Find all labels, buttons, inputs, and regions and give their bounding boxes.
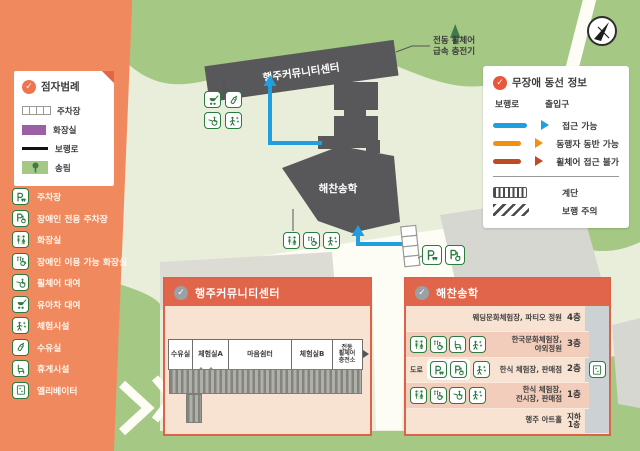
orange-entrance-arrow-icon xyxy=(535,138,543,148)
facility-accessible-parking: 장애인 전용 주차장 xyxy=(12,210,127,227)
floor-list: 웨딩문화체험장, 파티오 정원 4층 한국문화체험장, 야외정원 3층 도 xyxy=(406,306,589,433)
room-charger: 전동 휠체어 충전소 xyxy=(332,339,363,370)
corridor-hatched xyxy=(169,369,362,394)
wheelchair-rental-icon xyxy=(12,274,29,291)
facility-accessible-restroom: 장애인 이용 가능 화장실 xyxy=(12,253,127,270)
experience-icon xyxy=(323,232,340,249)
stairs-swatch xyxy=(493,187,527,198)
route-legend-title: 무장애 동선 정보 xyxy=(512,75,587,90)
room-nursing: 수유실 xyxy=(168,339,194,370)
parking-icon xyxy=(430,361,447,378)
legend-item-parking: 주차장 xyxy=(22,101,106,120)
braille-legend: ✓ 점자범례 주차장 화장실 보행로 송림 xyxy=(14,71,114,186)
room-experience-b: 체험실B xyxy=(291,339,333,370)
building2-label: 해찬송학 xyxy=(319,182,358,195)
haechansonghak-panel: ✓ 해찬송학 웨딩문화체험장, 파티오 정원 4층 xyxy=(404,277,611,436)
room-experience-a: 체험실A xyxy=(192,339,229,370)
map-icons-parking xyxy=(422,245,465,265)
wheelchair-rental-icon xyxy=(449,387,466,404)
facility-legend-list: 주차장 장애인 전용 주차장 화장실 장애인 이용 가능 화장실 휠체어 대여 … xyxy=(12,188,127,399)
floor-plan: 수유실 체험실A 마음쉼터 체험실B 전동 휠체어 충전소 xyxy=(165,306,370,433)
elevator-icon xyxy=(589,361,606,378)
accessible-restroom-icon xyxy=(12,253,29,270)
facility-wheelchair-rental: 휠체어 대여 xyxy=(12,274,127,291)
experience-icon xyxy=(225,112,242,129)
route-no-wheelchair: 휠체어 접근 불가 xyxy=(493,152,619,170)
parking-stalls-swatch xyxy=(22,106,50,115)
check-icon: ✓ xyxy=(493,76,507,90)
floor-row-b1: 행주 아트홀 지하 1층 xyxy=(406,408,589,433)
facility-stroller-rental: 유아차 대여 xyxy=(12,296,127,313)
accessible-site-map-page: 행주커뮤니티센터 전동 휠체어 급속 충전기 해찬송학 xyxy=(0,0,640,451)
floor-row-3f: 한국문화체험장, 야외정원 3층 xyxy=(406,331,589,356)
floor-row-1f: 한식 체험장, 전시장, 판매점 1층 xyxy=(406,382,589,407)
facility-parking: 주차장 xyxy=(12,188,127,205)
braille-legend-title: 점자범례 xyxy=(41,79,80,94)
panel-header: ✓ 행주커뮤니티센터 xyxy=(165,279,370,306)
compass-icon xyxy=(588,17,616,45)
accessible-parking-icon xyxy=(12,210,29,227)
legend-item-toilet: 화장실 xyxy=(22,120,106,139)
check-icon: ✓ xyxy=(174,286,188,300)
rest-area-icon xyxy=(12,360,29,377)
pine-forest-swatch xyxy=(22,161,48,174)
stroller-rental-icon xyxy=(204,91,221,108)
legend-item-walkway: 보행로 xyxy=(22,139,106,158)
stairs-item: 계단 xyxy=(493,183,619,201)
folded-corner xyxy=(102,71,114,83)
floor-row-2f: 도로 한식 체험장, 판매점 2층 xyxy=(406,357,589,382)
blue-route-swatch xyxy=(493,123,527,128)
map-icons-haechansonghak xyxy=(283,232,340,249)
experience-icon xyxy=(469,336,486,353)
accessible-restroom-icon xyxy=(303,232,320,249)
elevator-icon xyxy=(12,382,29,399)
blue-entrance-arrow-icon xyxy=(541,120,549,130)
caution-item: 보행 주의 xyxy=(493,201,619,219)
route-accessible: 접근 가능 xyxy=(493,116,619,134)
entrance-column-header: 출입구 xyxy=(545,97,569,110)
wheelchair-rental-icon xyxy=(204,112,221,129)
panel-title: 해찬송학 xyxy=(436,285,478,301)
check-icon: ✓ xyxy=(415,286,429,300)
stroller-rental-icon xyxy=(12,296,29,313)
road-parking-group xyxy=(427,359,470,380)
restroom-icon xyxy=(283,232,300,249)
red-route-swatch xyxy=(493,159,521,164)
walkway-swatch xyxy=(22,147,48,150)
experience-icon xyxy=(473,361,490,378)
route-legend: ✓ 무장애 동선 정보 보행로 출입구 접근 가능 동행자 동반 가능 휠체어 … xyxy=(483,66,629,228)
accessible-restroom-icon xyxy=(430,336,447,353)
legend-item-pine-forest: 송림 xyxy=(22,158,106,177)
facility-elevator: 엘리베이터 xyxy=(12,382,127,399)
road-label: 도로 xyxy=(410,365,423,375)
facility-experience: 체험시설 xyxy=(12,317,127,334)
parking-icon xyxy=(12,188,29,205)
restroom-icon xyxy=(410,336,427,353)
toilet-swatch xyxy=(22,125,46,135)
accessible-parking-icon xyxy=(445,245,465,265)
map-icons-community-center xyxy=(204,91,242,129)
panel-header: ✓ 해찬송학 xyxy=(406,279,609,306)
accessible-restroom-icon xyxy=(430,387,447,404)
community-center-panel: ✓ 행주커뮤니티센터 수유실 체험실A 마음쉼터 체험실B 전동 휠체어 충전소 xyxy=(163,277,372,436)
restroom-icon xyxy=(12,231,29,248)
restroom-icon xyxy=(410,387,427,404)
exit-arrow-icon xyxy=(363,350,369,358)
rest-area-icon xyxy=(449,336,466,353)
walkway-column-header: 보행로 xyxy=(495,97,537,110)
pin-icon xyxy=(31,162,40,173)
parking-icon xyxy=(422,245,442,265)
check-icon: ✓ xyxy=(22,80,36,94)
experience-icon xyxy=(12,317,29,334)
charger-label-line2: 급속 충전기 xyxy=(433,46,475,57)
stair-stub-hatched xyxy=(186,394,202,423)
charger-label-line1: 전동 휠체어 xyxy=(433,35,475,46)
accessible-parking-icon xyxy=(450,361,467,378)
nursing-room-icon xyxy=(225,91,242,108)
divider xyxy=(493,176,619,177)
red-entrance-arrow-icon xyxy=(535,156,543,166)
route-companion: 동행자 동반 가능 xyxy=(493,134,619,152)
experience-icon xyxy=(469,387,486,404)
nursing-room-icon xyxy=(12,339,29,356)
floor-row-4f: 웨딩문화체험장, 파티오 정원 4층 xyxy=(406,306,589,331)
orange-route-swatch xyxy=(493,141,521,146)
facility-nursing-room: 수유실 xyxy=(12,339,127,356)
panel-title: 행주커뮤니티센터 xyxy=(195,285,280,301)
facility-restroom: 화장실 xyxy=(12,231,127,248)
room-rest-shelter: 마음쉼터 xyxy=(228,339,293,370)
facility-rest-area: 휴게시설 xyxy=(12,360,127,377)
caution-swatch xyxy=(493,204,529,216)
